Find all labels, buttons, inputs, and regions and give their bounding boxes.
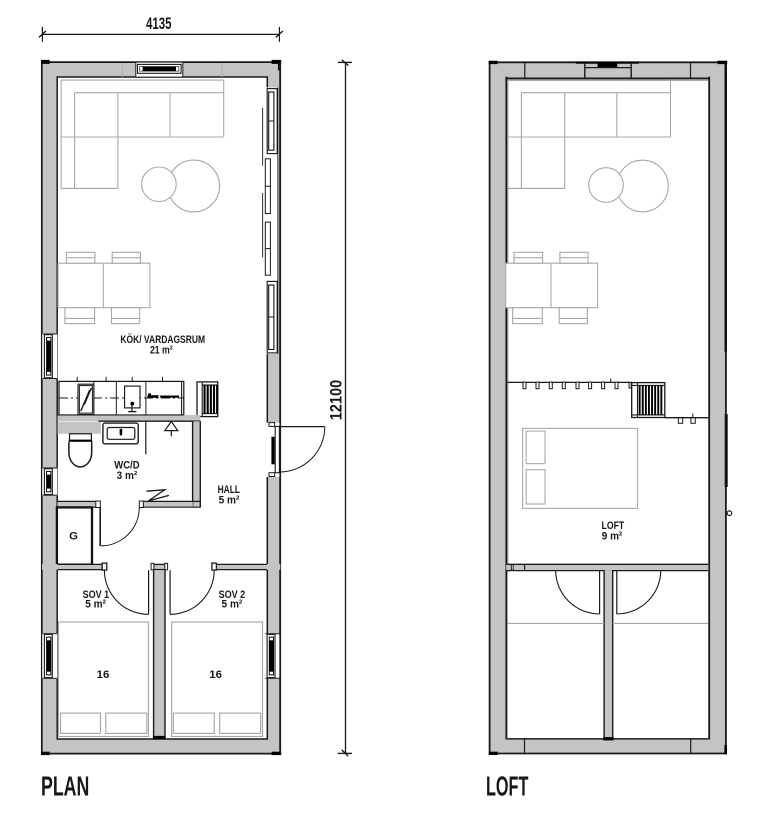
svg-text:16: 16 <box>209 669 222 681</box>
svg-text:5 m²: 5 m² <box>219 494 240 506</box>
svg-text:21 m²: 21 m² <box>150 345 173 357</box>
svg-text:5 m²: 5 m² <box>85 599 106 611</box>
svg-text:16: 16 <box>97 669 110 681</box>
svg-text:PLAN: PLAN <box>41 771 89 802</box>
svg-text:G: G <box>69 531 78 543</box>
svg-text:9 m²: 9 m² <box>602 531 623 543</box>
svg-text:LOFT: LOFT <box>486 771 528 802</box>
svg-text:5 m²: 5 m² <box>222 599 243 611</box>
svg-text:12100: 12100 <box>327 380 346 421</box>
svg-text:4135: 4135 <box>146 14 172 33</box>
svg-text:3 m²: 3 m² <box>117 470 138 482</box>
